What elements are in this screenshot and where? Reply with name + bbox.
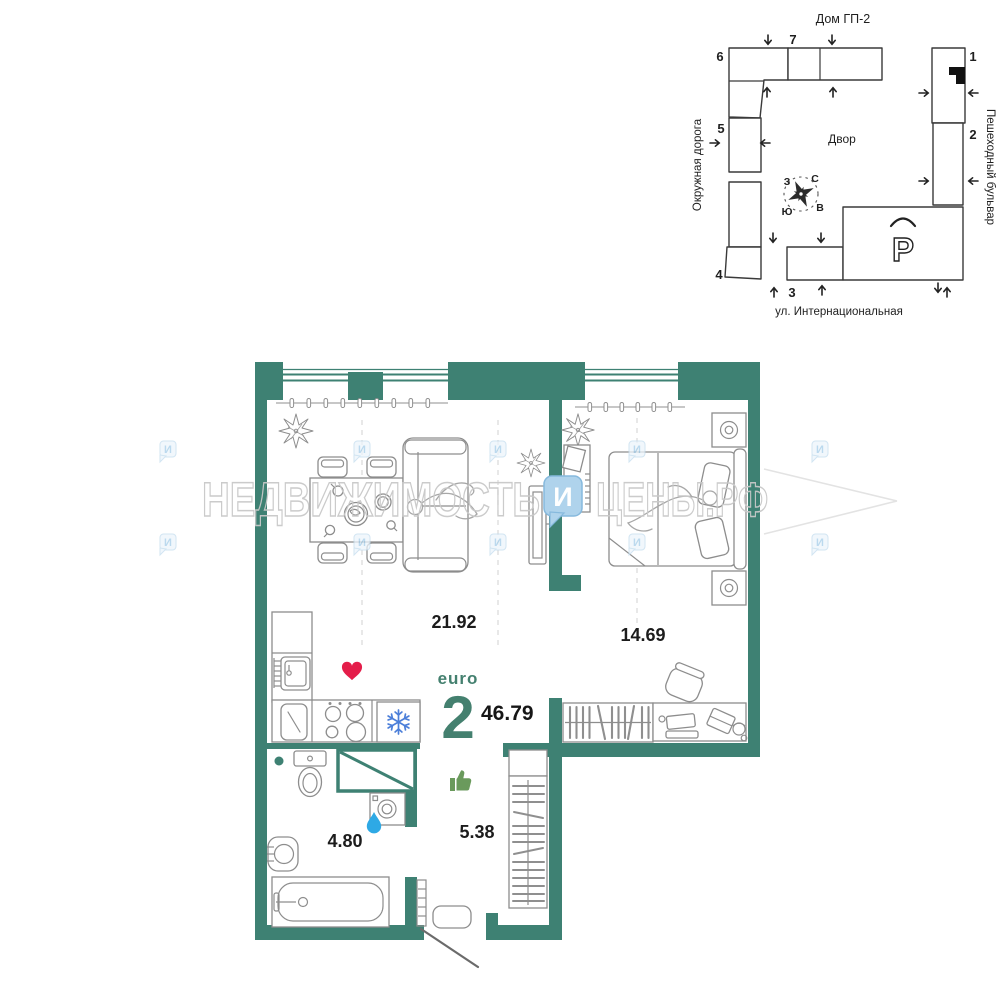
mini-watermark-letter: И (494, 537, 502, 549)
mini-watermark-letter: И (633, 537, 641, 549)
building-5-number: 5 (717, 121, 724, 136)
watermark-text-left: НЕДВИЖИМОСТЬ (202, 474, 540, 527)
courtyard-label: Двор (828, 132, 856, 146)
kitchen (272, 612, 420, 742)
wall-left (255, 362, 267, 940)
mini-watermark-icon: И (812, 534, 828, 555)
building-3-number: 3 (788, 285, 795, 300)
desk-chair (663, 661, 707, 704)
watermark-decor-line (764, 469, 897, 501)
mini-watermark-letter: И (816, 537, 824, 549)
compass-east: В (816, 202, 824, 214)
mini-watermark-icon: И (490, 441, 506, 462)
compass-west: З (784, 176, 791, 188)
compass-north: С (811, 173, 819, 185)
wall-pier-4 (678, 362, 760, 400)
fridge (377, 702, 420, 742)
desk (653, 703, 747, 741)
building-7-shape (788, 48, 882, 80)
building-7-number: 7 (789, 32, 796, 47)
site-title: Дом ГП-2 (816, 12, 871, 26)
wall-hall-step (486, 913, 498, 940)
bathtub (272, 877, 389, 927)
wall-right (748, 362, 760, 757)
hall-wardrobe (509, 750, 547, 908)
heart-icon (342, 662, 362, 680)
mini-watermark-icon: И (812, 441, 828, 462)
building-2-shape (933, 123, 963, 205)
mini-watermark-icon: И (160, 534, 176, 555)
building-5-shape (729, 118, 761, 172)
building-1-number: 1 (969, 49, 976, 64)
compass-icon: З С Ю В (782, 173, 825, 218)
watermark-text-right: ЦЕНЫ.РФ (596, 474, 768, 527)
living-area-label: 21.92 (431, 612, 476, 632)
site-buildings (725, 48, 965, 280)
mini-watermark-letter: И (358, 537, 366, 549)
radiator-living (276, 399, 448, 408)
thumbs-up-icon (450, 770, 471, 791)
road-left-label: Окружная дорога (692, 118, 704, 211)
plan-svg: Дом ГП-2 6 7 5 4 3 1 2 (0, 0, 1000, 1000)
speaker-nightstand (712, 571, 746, 605)
floor-plan: 21.92 (255, 362, 760, 967)
plant-icon (279, 414, 313, 448)
total-area-label: 46.79 (481, 702, 534, 725)
drain-dot (275, 757, 284, 766)
mini-watermark-letter: И (164, 537, 172, 549)
radiator-bedroom (575, 403, 685, 412)
wall-kitchen-divider (267, 743, 420, 749)
mini-watermark-letter: И (816, 444, 824, 456)
plant-icon (517, 449, 545, 477)
speaker-nightstand (712, 413, 746, 447)
apartment-type: euro 2 46.79 (438, 669, 534, 751)
building-mid-left-shape (729, 182, 761, 247)
bedroom: 14.69 (562, 413, 747, 742)
building-4-number: 4 (715, 267, 723, 282)
building-3-shape (787, 247, 843, 280)
wall-pier-2 (348, 372, 383, 400)
wall-hall-bottom (498, 925, 562, 940)
wall-hall-wardrobe (549, 757, 562, 925)
mini-watermark-letter: И (494, 444, 502, 456)
watermark-decor-line (764, 501, 897, 534)
bathroom-door-leaf (417, 880, 426, 926)
site-plan: Дом ГП-2 6 7 5 4 3 1 2 (692, 12, 996, 318)
mini-watermark-letter: И (358, 444, 366, 456)
building-1-shape (932, 48, 965, 123)
watermark-logo: И (544, 476, 582, 527)
road-bottom-label: ул. Интернациональная (775, 306, 903, 318)
cutting-board (281, 704, 307, 740)
floorplan-page: Дом ГП-2 6 7 5 4 3 1 2 (0, 0, 1000, 1000)
doormat (433, 906, 471, 928)
building-2-number: 2 (969, 127, 976, 142)
toilet (294, 751, 326, 797)
wall-bath-right-lower (405, 877, 417, 928)
entrance-door-swing (421, 929, 478, 967)
duct-shaft (338, 750, 415, 791)
compass-south: Ю (782, 206, 793, 218)
mini-watermark-letter: И (633, 444, 641, 456)
plant-icon (562, 414, 594, 446)
bedroom-wardrobe (563, 703, 653, 742)
hallway-area-label: 5.38 (459, 822, 494, 842)
road-right-label: Пешеходный бульвар (984, 109, 996, 225)
watermark-logo-letter: И (553, 482, 572, 512)
mini-watermark-icon: И (160, 441, 176, 462)
wall-mid-lower (549, 698, 562, 743)
wall-pier-3 (448, 362, 585, 400)
building-6-number: 6 (716, 49, 723, 64)
bathroom-sink (267, 837, 298, 871)
rooms-count-label: 2 (441, 684, 474, 751)
building-6-shape (729, 48, 788, 118)
parking-letter: P (892, 231, 914, 268)
mini-watermark-letter: И (164, 444, 172, 456)
bedroom-area-label: 14.69 (620, 625, 665, 645)
walls (255, 362, 760, 940)
wall-mid-cap (549, 575, 581, 591)
bathroom: 4.80 (267, 750, 426, 927)
bathroom-area-label: 4.80 (327, 831, 362, 851)
building-4-shape (725, 247, 761, 279)
